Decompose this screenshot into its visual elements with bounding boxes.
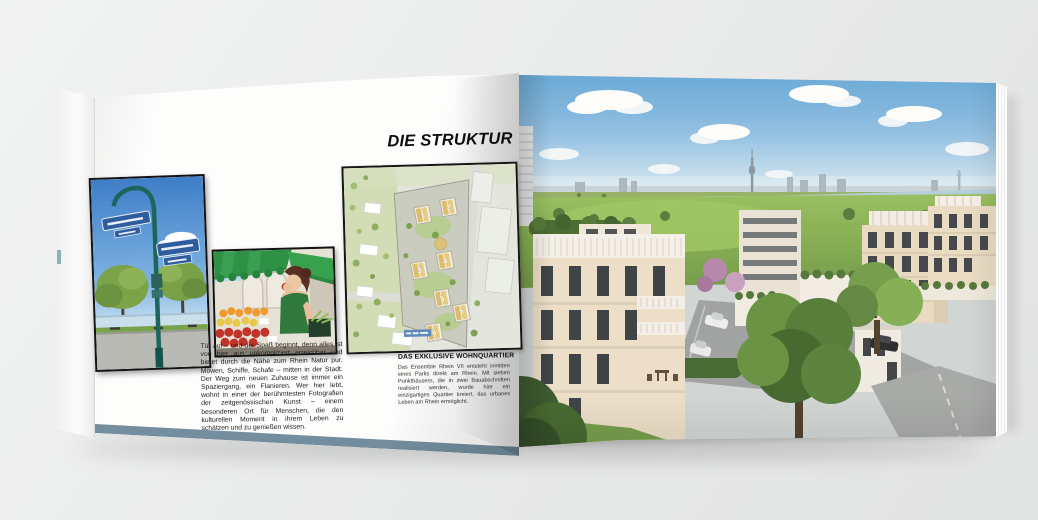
site-plan-map: 1 2 3 4 5 6 7 (341, 162, 522, 355)
body-text: Tür auf – und der Spaß beginnt, denn all… (200, 341, 343, 433)
right-page (519, 74, 996, 448)
street-sign-photo (89, 174, 212, 372)
headline: DIE STRUKTUR (380, 129, 520, 151)
cover-sliver (57, 250, 61, 264)
page-edge (996, 82, 1007, 438)
right-page-curvature (519, 74, 996, 448)
street-sign-illustration (91, 176, 210, 370)
page-stack-edge (57, 85, 95, 438)
market-illustration (214, 248, 336, 355)
map-label (404, 329, 431, 337)
site-plan-illustration: 1 2 3 4 5 6 7 (343, 164, 520, 353)
caption-text: Das Ensemble Rhein VII entsteht inmitten… (398, 363, 511, 406)
river-and-promenade (95, 312, 209, 370)
backdrop: DIE STRUKTUR (0, 0, 1038, 520)
caption-title: DAS EXKLUSIVE WOHNQUARTIER (398, 352, 516, 362)
